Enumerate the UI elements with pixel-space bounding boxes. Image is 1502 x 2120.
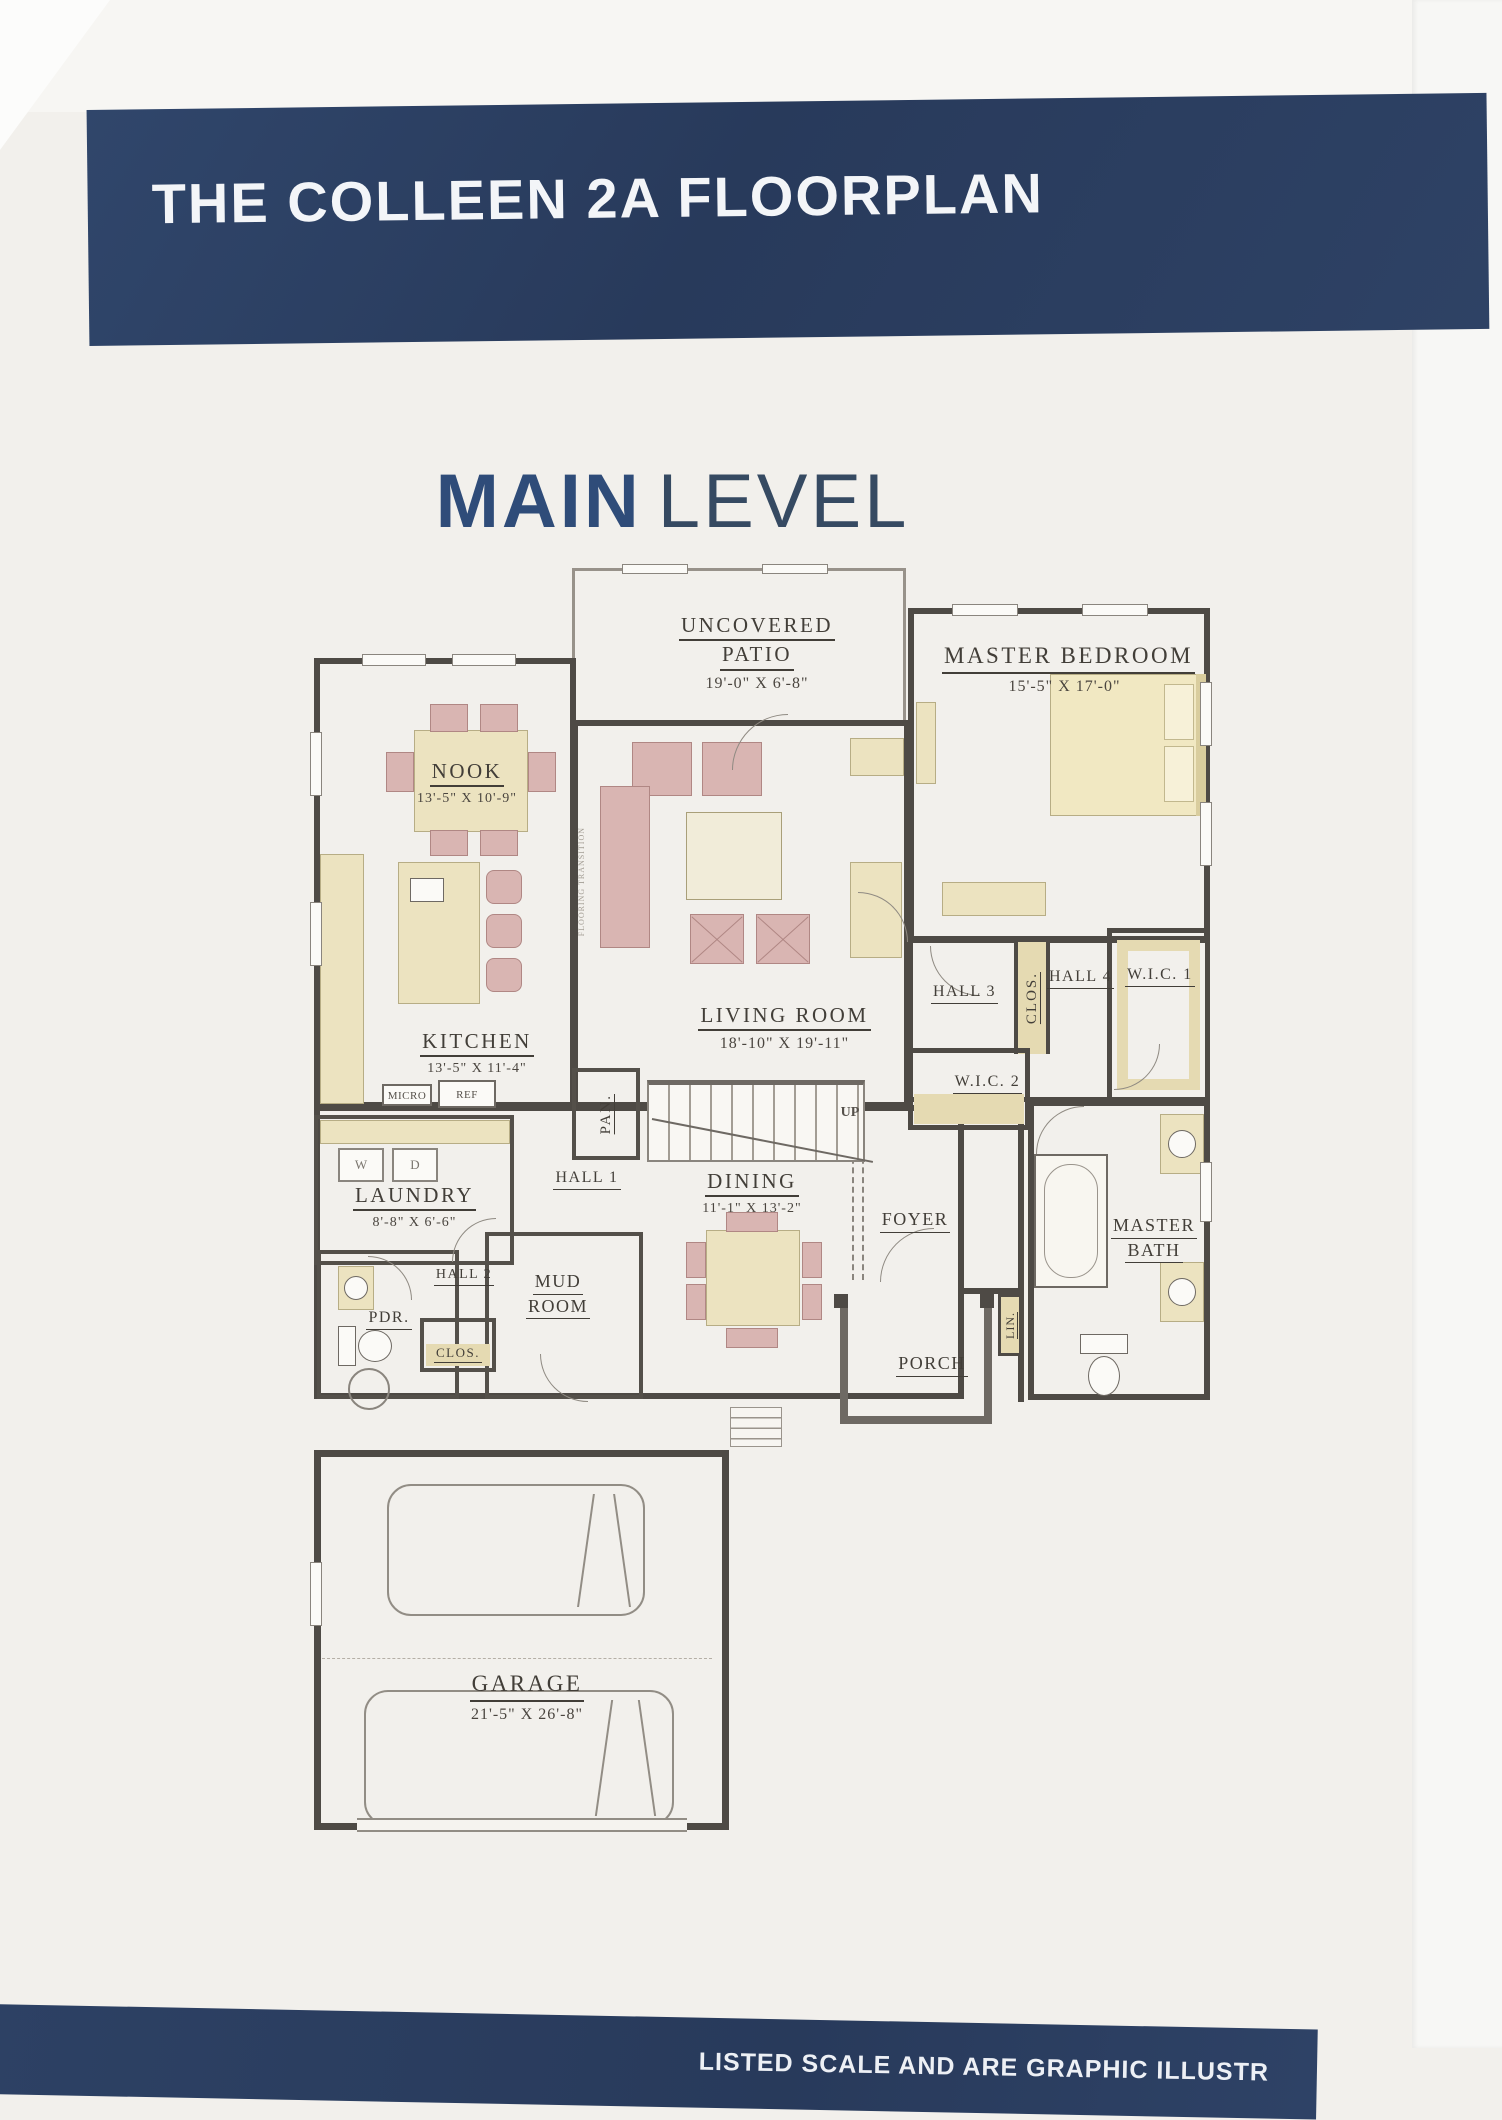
window: [1200, 682, 1212, 746]
patio-label: UNCOVERED PATIO 19'-0" X 6'-8": [672, 612, 842, 694]
nook-dims: 13'-5" X 10'-9": [402, 790, 532, 808]
nook-chair: [430, 704, 468, 732]
level-heading-main: MAIN: [436, 459, 642, 544]
window: [1200, 1162, 1212, 1222]
hall3-name: HALL 3: [931, 982, 998, 1004]
sink-basin: [1168, 1130, 1196, 1158]
porch-post: [980, 1294, 994, 1308]
dining-label: DINING 11'-1" X 13'-2": [687, 1168, 817, 1218]
car-windshield-line: [577, 1494, 595, 1607]
flooring-note-text: FLOORING TRANSITION: [577, 827, 586, 936]
dryer-label: D: [394, 1150, 436, 1180]
toilet-bowl: [1088, 1356, 1120, 1396]
foyer-label: FOYER: [860, 1208, 970, 1233]
dryer: D: [392, 1148, 438, 1182]
living-room-label: LIVING ROOM 18'-10" X 19'-11": [692, 1002, 877, 1054]
kitchen-sink: [410, 878, 444, 902]
window: [362, 654, 426, 666]
wic1-name: W.I.C. 1: [1125, 965, 1195, 987]
car-outline: [387, 1484, 645, 1616]
garage-name: GARAGE: [470, 1670, 585, 1702]
window: [310, 732, 322, 796]
sink-basin: [1168, 1278, 1196, 1306]
powder-name: PDR.: [366, 1308, 411, 1330]
water-heater: [348, 1368, 390, 1410]
kitchen-name: KITCHEN: [420, 1028, 534, 1057]
patio-dims: 19'-0" X 6'-8": [672, 674, 842, 694]
washer-label: W: [340, 1150, 382, 1180]
kitchen-dims: 13'-5" X 11'-4": [412, 1060, 542, 1078]
island-stool: [486, 914, 522, 948]
window: [1200, 802, 1212, 866]
wic2-label: W.I.C. 2: [940, 1072, 1035, 1094]
stairs-up-label: UP: [832, 1104, 868, 1122]
pillow: [1164, 746, 1194, 802]
sink-basin: [344, 1276, 368, 1300]
nook-chair: [480, 704, 518, 732]
master-bedroom-dims: 15'-5" X 17'-0": [942, 677, 1187, 697]
hall2-name: HALL 2: [434, 1266, 494, 1286]
toilet-tank: [338, 1326, 356, 1366]
laundry-dims: 8'-8" X 6'-6": [342, 1214, 487, 1232]
dresser-tv: [916, 702, 936, 784]
window: [310, 1562, 322, 1626]
island-stool: [486, 958, 522, 992]
toilet-bowl: [358, 1330, 392, 1362]
dining-chair: [726, 1328, 778, 1348]
page-title: THE COLLEEN 2A FLOORPLAN: [151, 160, 1044, 236]
mud-room-line2: ROOM: [526, 1295, 590, 1320]
laundry-name: LAUNDRY: [353, 1182, 476, 1211]
pantry-name: PAN.: [598, 1094, 615, 1134]
window: [622, 564, 688, 574]
master-bath-label: MASTER BATH: [1100, 1214, 1208, 1263]
car-windshield-line: [613, 1494, 631, 1607]
porch-post: [834, 1294, 848, 1308]
hall4-name: HALL 4: [1047, 967, 1114, 989]
pantry-label: PAN.: [574, 1070, 638, 1158]
nook-name: NOOK: [430, 758, 505, 787]
scanned-flyer-page: { "banner": { "title": "THE COLLEEN 2A F…: [0, 0, 1502, 2048]
porch-label: PORCH: [887, 1352, 977, 1377]
linen-label: LIN.: [996, 1292, 1024, 1358]
level-heading-level: LEVEL: [658, 459, 910, 544]
car-windshield-line: [637, 1700, 655, 1816]
linen-name: LIN.: [1003, 1312, 1018, 1339]
garage-label: GARAGE 21'-5" X 26'-8": [452, 1670, 602, 1725]
dining-chair: [686, 1242, 706, 1278]
window: [952, 604, 1018, 616]
nook-chair: [480, 830, 518, 856]
closet2-name: CLOS.: [434, 1345, 482, 1363]
laundry-label: LAUNDRY 8'-8" X 6'-6": [342, 1182, 487, 1232]
hall4-label: HALL 4: [1047, 967, 1113, 989]
sofa: [600, 786, 650, 948]
coffee-table: [686, 812, 782, 900]
garage-door-opening: [357, 1818, 687, 1832]
island-stool: [486, 870, 522, 904]
living-room-dims: 18'-10" X 19'-11": [692, 1034, 877, 1054]
entry-steps: [730, 1407, 782, 1447]
hall1-name: HALL 1: [553, 1168, 620, 1190]
nook-label: NOOK 13'-5" X 10'-9": [402, 758, 532, 808]
hall-closet-name: CLOS.: [1024, 972, 1041, 1024]
hall-closet-label: CLOS.: [1014, 942, 1050, 1054]
laundry-counter: [320, 1120, 510, 1144]
kitchen-label: KITCHEN 13'-5" X 11'-4": [412, 1028, 542, 1078]
refrigerator: REF: [438, 1080, 496, 1108]
wic1-label: W.I.C. 1: [1114, 965, 1206, 987]
side-cabinet: [850, 738, 904, 776]
microwave-label: MICRO: [384, 1086, 430, 1106]
footer-banner: LISTED SCALE AND ARE GRAPHIC ILLUSTR: [0, 2004, 1318, 2120]
window: [1082, 604, 1148, 616]
hall2-label: HALL 2: [420, 1264, 508, 1286]
level-heading: MAINLEVEL: [0, 458, 1345, 545]
dining-chair: [802, 1242, 822, 1278]
foyer-name: FOYER: [880, 1208, 951, 1233]
garage-dims: 21'-5" X 26'-8": [452, 1705, 602, 1725]
bathtub-basin: [1044, 1164, 1098, 1278]
dining-chair: [686, 1284, 706, 1320]
washer: W: [338, 1148, 384, 1182]
accent-chair: [756, 914, 810, 964]
dining-dims: 11'-1" X 13'-2": [687, 1200, 817, 1218]
window: [452, 654, 516, 666]
wic2-name: W.I.C. 2: [953, 1072, 1023, 1094]
master-bath-line1: MASTER: [1111, 1214, 1197, 1239]
nook-chair: [528, 752, 556, 792]
window: [762, 564, 828, 574]
mud-room-line1: MUD: [533, 1270, 584, 1295]
powder-label: PDR.: [350, 1308, 428, 1330]
garage-ceiling-line: [322, 1658, 712, 1659]
master-bedroom-name: MASTER BEDROOM: [942, 642, 1195, 674]
closet2-label: CLOS.: [426, 1345, 490, 1363]
window: [310, 902, 322, 966]
microwave-cabinet: MICRO: [382, 1084, 432, 1106]
patio-name-line1: UNCOVERED: [679, 612, 835, 641]
porch-name: PORCH: [896, 1352, 968, 1377]
wic2-shelving: [914, 1094, 1024, 1124]
mud-room-label: MUD ROOM: [514, 1270, 602, 1319]
dining-table: [706, 1230, 800, 1326]
master-bath-line2: BATH: [1125, 1239, 1182, 1264]
floorplan-drawing: MICRO REF W D: [302, 562, 1217, 1847]
footer-disclaimer: LISTED SCALE AND ARE GRAPHIC ILLUSTR: [698, 2048, 1269, 2088]
dining-name: DINING: [705, 1168, 799, 1197]
vanity-sink: [1160, 1114, 1204, 1174]
hall3-label: HALL 3: [917, 982, 1012, 1004]
master-bedroom-label: MASTER BEDROOM 15'-5" X 17'-0": [942, 642, 1187, 697]
living-room-name: LIVING ROOM: [698, 1002, 870, 1031]
patio-name-line2: PATIO: [720, 641, 794, 670]
refrigerator-label: REF: [440, 1082, 494, 1108]
kitchen-counter: [320, 854, 364, 1104]
vanity-sink: [1160, 1262, 1204, 1322]
toilet-tank: [1080, 1334, 1128, 1354]
hall1-label: HALL 1: [537, 1168, 637, 1190]
flooring-note: FLOORING TRANSITION: [574, 817, 588, 947]
dresser: [942, 882, 1046, 916]
title-banner: THE COLLEEN 2A FLOORPLAN: [87, 93, 1490, 346]
accent-chair: [690, 914, 744, 964]
nook-chair: [430, 830, 468, 856]
dining-chair: [802, 1284, 822, 1320]
